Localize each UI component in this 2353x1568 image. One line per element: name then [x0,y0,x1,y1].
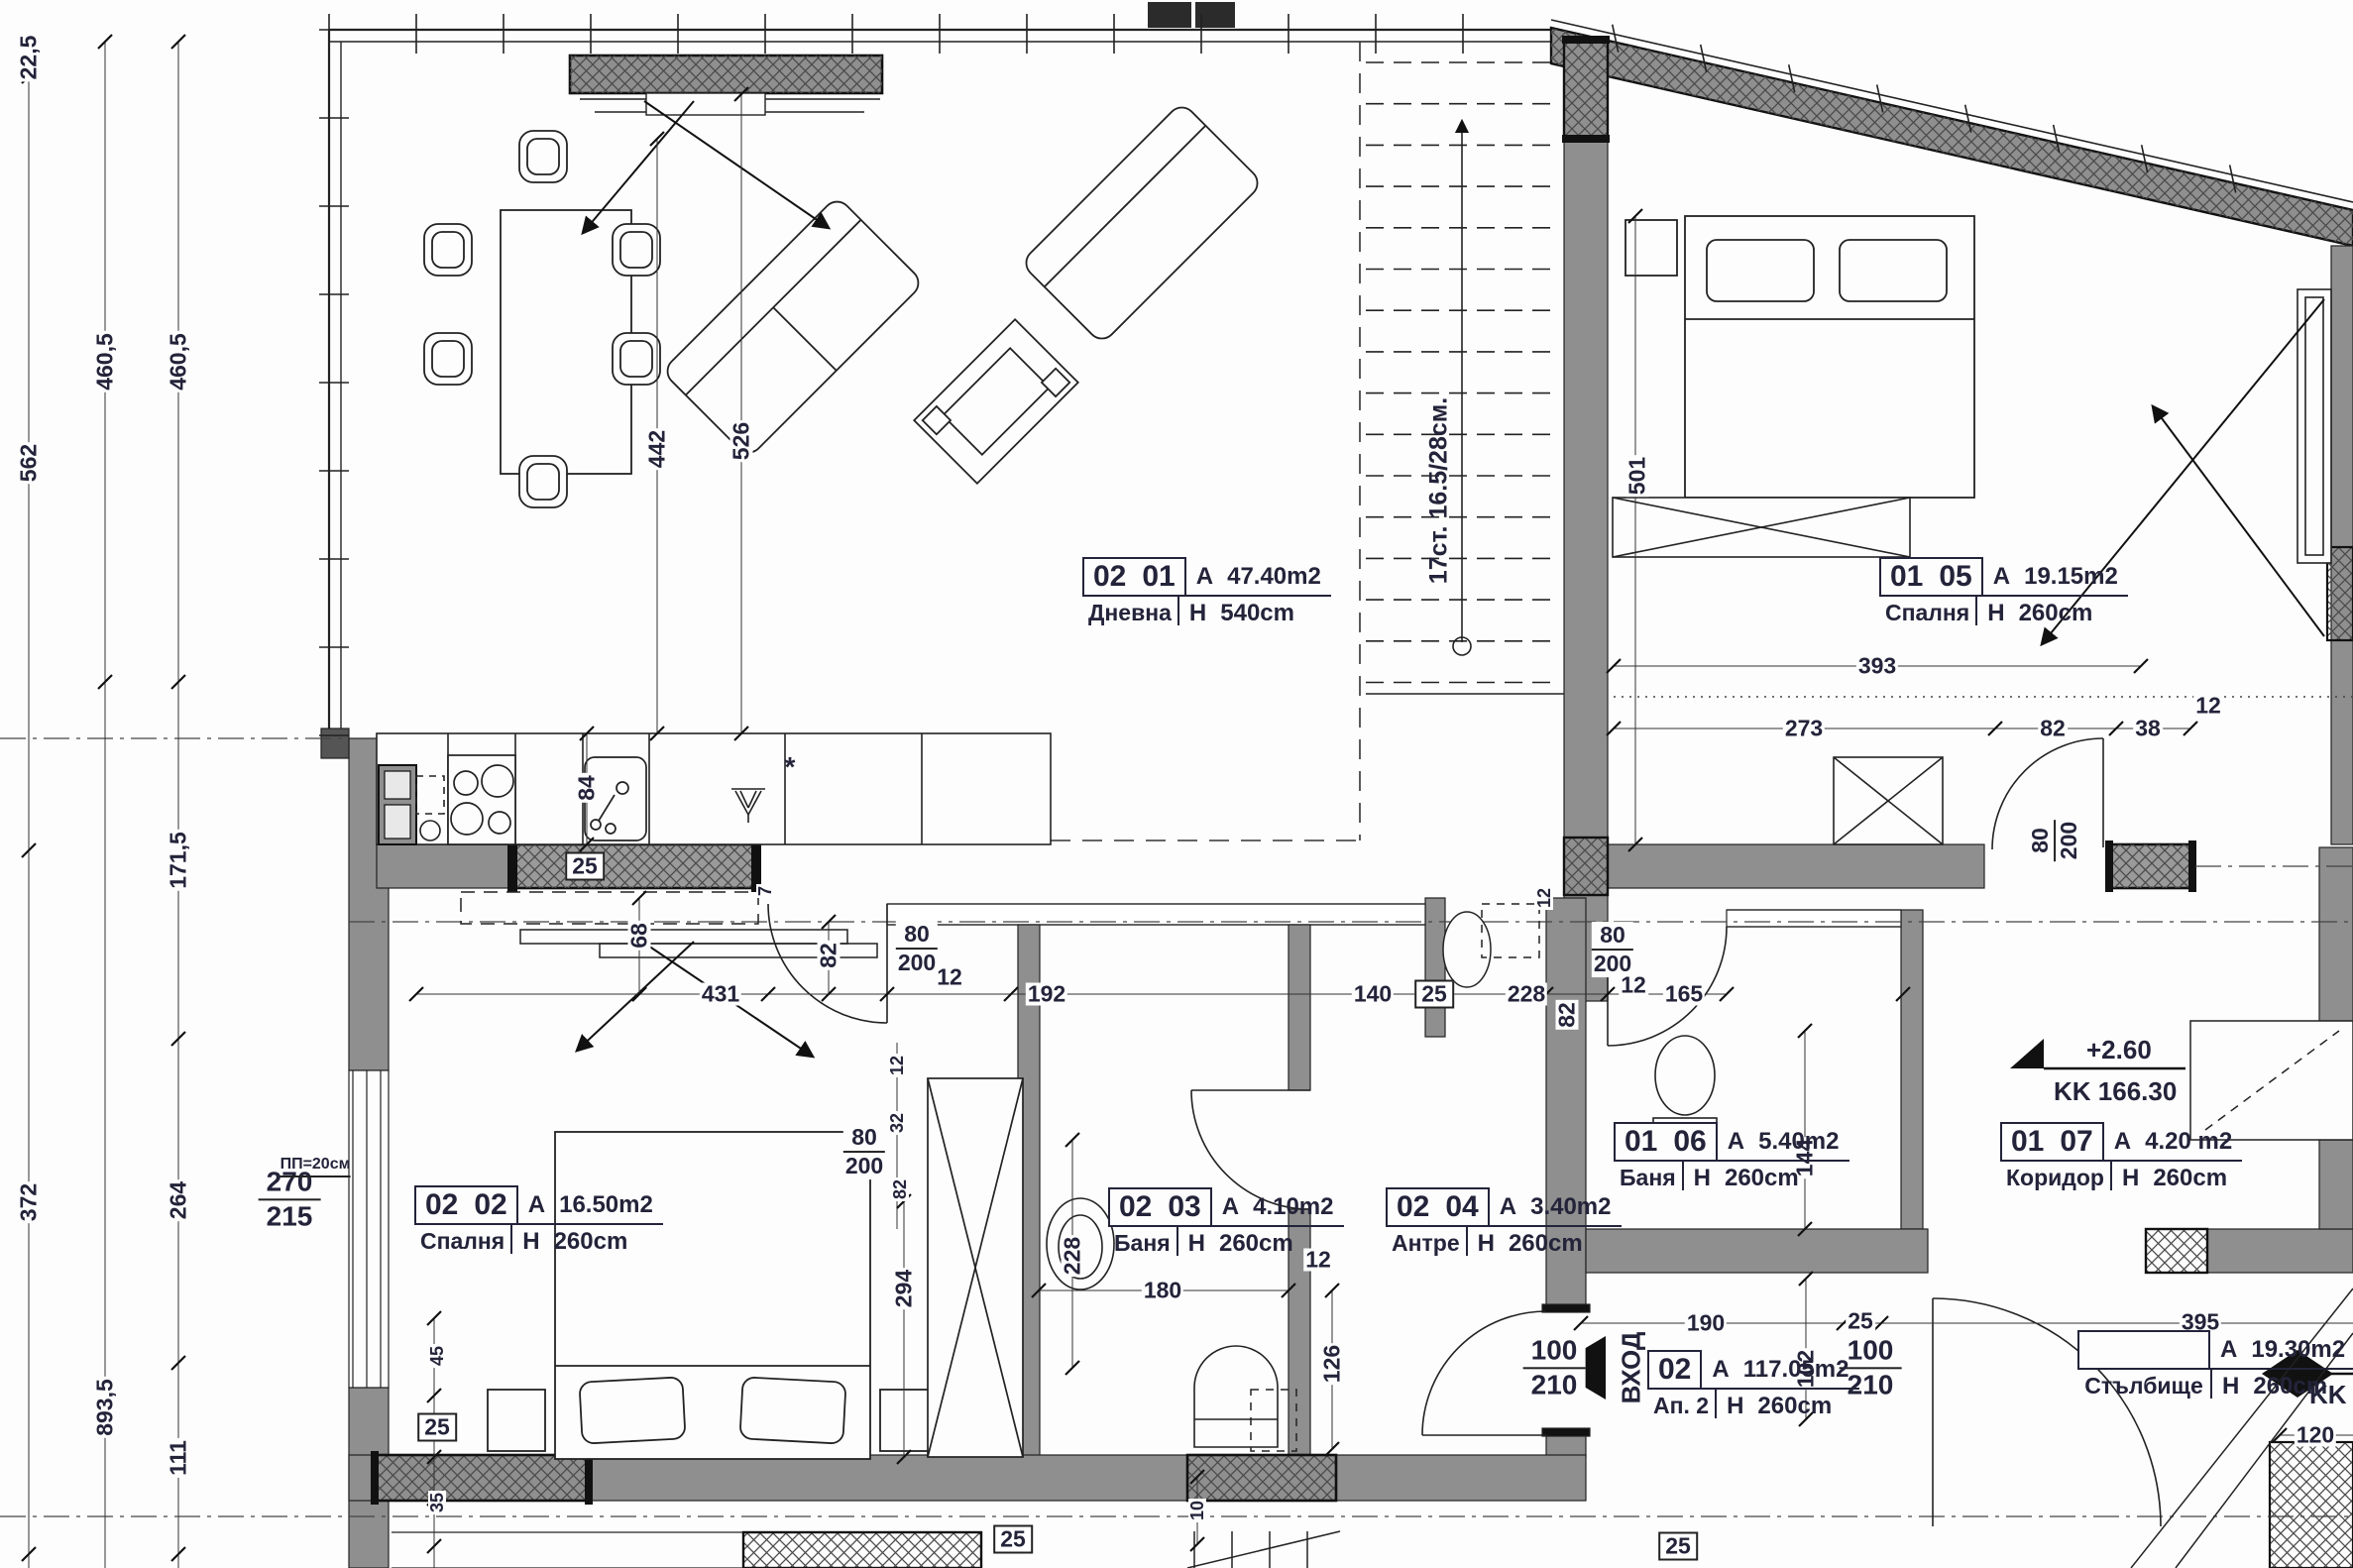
top-right-diagonal-wall [1551,28,2353,246]
dim-d_140: 140 [1352,983,1394,1006]
dim-d_228b: 228 [1062,1235,1084,1277]
room-height-cell: H260cm [1682,1162,1799,1190]
room-area-cell: A4.10m2 [1212,1195,1344,1227]
height-prefix: H [2122,1165,2139,1191]
room-number: 04 [1445,1192,1478,1222]
wardrobe-right-wall [2297,289,2331,563]
level-datum-corridor: KK 166.30 [2054,1076,2177,1107]
area-prefix: A [2220,1336,2237,1363]
dim-d_12c: 12 [2193,695,2223,718]
room-label-Антре: 0204A3.40m2АнтреH260cm [1386,1187,1622,1256]
stair-note: 17ст. 16.5/28см. [1425,397,1454,584]
room-area-cell: A47.40m2 [1186,565,1331,597]
room-area-cell: A117.05m2 [1702,1358,1858,1390]
room-number-box [2077,1330,2210,1370]
room-number: 02 [425,1190,458,1220]
nightstand [1625,220,1677,276]
height-prefix: H [1694,1165,1711,1191]
dim-value: 200 [843,1154,885,1179]
room-name: Дневна [1082,597,1177,625]
sofa-small [1021,102,1264,345]
dim-d_22_5: 22,5 [18,34,41,82]
room-number: 06 [1673,1127,1706,1157]
dim-d_111: 111 [168,1438,190,1478]
dim-d_171: 171,5 [168,830,190,891]
room-height-cell: H260cm [1975,597,2092,625]
room-label-Дневна: 0201A47.40m2ДневнаH540cm [1082,557,1331,625]
room-area: 19.30m2 [2251,1336,2345,1363]
dim-d_25a: 25 [1846,1310,1875,1333]
dim-value: 100 [1523,1334,1586,1369]
room-number-box: 0107 [2000,1122,2104,1162]
room-area: 4.20 m2 [2145,1128,2232,1155]
wardrobe-x-bedroom-01 [1834,757,1943,844]
dim-d_526: 526 [730,420,753,462]
room-label-Спалня: 0202A16.50m2СпалняH260cm [414,1185,663,1254]
dim-d_431: 431 [700,983,741,1006]
dim-d_264: 264 [168,1179,190,1221]
room-label-Баня: 0203A4.10m2БаняH260cm [1108,1187,1344,1256]
room-number: 05 [1939,562,1971,592]
dim-d_273: 273 [1783,718,1825,740]
area-prefix: A [1196,563,1213,590]
dining-table [424,131,660,507]
room-number: 01 [1890,562,1923,592]
dim-d_294: 294 [893,1268,916,1309]
nightstand [488,1390,545,1451]
dim-d_393: 393 [1856,655,1898,678]
room-name: Спалня [1879,597,1975,625]
room-height-cell: H540cm [1177,597,1294,625]
room-height: 260cm [1757,1393,1832,1419]
dim-d_45: 45 [428,1344,446,1368]
dim-d_25d: 25 [1658,1532,1698,1561]
bed-bedroom-02 [488,1132,938,1459]
room-number: 01 [1625,1127,1657,1157]
dim-d_192: 192 [1026,983,1067,1006]
dim-value: 215 [265,1201,315,1233]
room-name: Ап. 2 [1647,1390,1715,1418]
star-mark: * [785,751,796,783]
height-prefix: H [1727,1393,1743,1419]
height-prefix: H [1188,1230,1205,1257]
room-area: 5.40m2 [1758,1128,1839,1155]
room-number: 01 [1142,562,1175,592]
dim-d_25b: 25 [417,1413,457,1442]
room-name: Баня [1108,1227,1176,1256]
room-area: 19.15m2 [2024,563,2118,590]
room-area-cell: A3.40m2 [1490,1195,1622,1227]
room-area: 47.40m2 [1227,563,1321,590]
room-area-cell: A19.15m2 [1983,565,2128,597]
room-label-Коридор: 0107A4.20 m2КоридорH260cm [2000,1122,2242,1190]
dim-d_460b: 460,5 [168,331,190,392]
room-number-box: 0106 [1614,1122,1718,1162]
dim-d_68: 68 [628,921,651,951]
room-number: 07 [2060,1127,2092,1157]
height-prefix: H [1987,600,2004,626]
sofa-large [662,196,924,458]
level-datum-stairs: KK 1 [2309,1380,2353,1410]
dim-value: 200 [896,951,938,976]
dim-d_25k: 25 [565,852,605,881]
height-prefix: H [2222,1373,2239,1400]
room-number-box: 0203 [1108,1187,1212,1227]
room-number: 02 [1658,1355,1691,1385]
dim-value: 210 [1529,1370,1580,1401]
room-height: 260cm [2019,600,2093,626]
room-label-Баня: 0106A5.40m2БаняH260cm [1614,1122,1849,1190]
room-area: 4.10m2 [1253,1193,1333,1220]
area-prefix: A [1712,1356,1729,1383]
room-number: 02 [1093,562,1126,592]
area-prefix: A [1222,1193,1239,1220]
room-height-cell: H260cm [1176,1227,1293,1256]
room-height: 260cm [1509,1230,1583,1257]
dim-value: 80 [843,1124,885,1153]
floor-plan-sheet: 22,5562460,5460,5171,5372264893,51114425… [0,0,2353,1568]
dim-d_372: 372 [18,1181,41,1223]
room-number: 02 [474,1190,506,1220]
area-prefix: A [1500,1193,1516,1220]
dim-d_12d: 12 [1535,886,1553,910]
dim-d_562: 562 [18,442,41,484]
room-number-box: 0202 [414,1185,518,1225]
area-prefix: A [2114,1128,2131,1155]
toilet-bath-02 [1194,1346,1278,1447]
dim-d_126: 126 [1321,1343,1344,1385]
bed-bedroom-01 [1625,216,1974,498]
room-number-box: 0105 [1879,557,1983,597]
room-name: Коридор [2000,1162,2110,1190]
dim-d_80c: 80200 [2027,820,2082,861]
room-label-Ап. 2: 02A117.05m2Ап. 2H260cm [1647,1350,1859,1418]
dim-d_25c: 25 [993,1525,1033,1554]
coffee-table [914,319,1077,483]
room-number-box: 0201 [1082,557,1186,597]
window-bedroom-02 [349,1070,389,1388]
height-prefix: H [1478,1230,1495,1257]
room-height: 260cm [1725,1165,1799,1191]
dim-d_12a: 12 [935,966,964,989]
floor-plan-drawing [0,0,2353,1568]
room-number-box: 02 [1647,1350,1702,1390]
room-name: Баня [1614,1162,1682,1190]
room-area-cell: A4.20 m2 [2104,1130,2242,1162]
dim-d_80b: 80200 [1592,922,1633,977]
room-area-cell: A5.40m2 [1718,1130,1849,1162]
area-prefix: A [1993,563,2010,590]
room-area: 117.05m2 [1743,1356,1849,1383]
room-height: 540cm [1220,600,1294,626]
dim-d_25w: 25 [1414,980,1454,1009]
room-area-cell: A16.50m2 [518,1193,663,1225]
height-prefix: H [1189,600,1206,626]
dim-value: 80 [896,921,938,950]
wardrobe-x-bedroom-02 [928,1078,1023,1457]
room-height-cell: H260cm [1466,1227,1583,1256]
vent-shaft [1148,2,1235,28]
area-prefix: A [528,1191,545,1218]
dim-d_165: 165 [1663,983,1705,1006]
bench-bed-foot [1613,498,1910,557]
dim-d_82b: 82 [1556,1000,1579,1030]
dim-d_180: 180 [1142,1280,1183,1302]
dim-d_82a: 82 [818,941,840,970]
dim-d_893: 893,5 [94,1377,117,1438]
facade-beam [570,56,882,115]
dim-value: 80 [2027,820,2056,861]
room-number-box: 0204 [1386,1187,1490,1227]
dim-d_228a: 228 [1506,983,1547,1006]
dim-d_80d: 80200 [843,1124,885,1179]
height-prefix: H [522,1228,539,1255]
level-value-corridor: +2.60 [2086,1035,2152,1065]
dim-d_460a: 460,5 [94,331,117,392]
room-height: 260cm [2153,1165,2227,1191]
room-area: 16.50m2 [559,1191,653,1218]
dim-d_38: 38 [2133,718,2163,740]
dim-d_35: 35 [428,1491,446,1514]
dim-d_32: 32 [888,1111,906,1135]
room-height-cell: H260cm [1715,1390,1832,1418]
dim-d_82d: 82 [891,1177,909,1201]
room-number: 01 [2011,1127,2044,1157]
room-height-cell: H260cm [510,1225,627,1254]
dim-d_501: 501 [1626,455,1649,497]
room-number: 02 [1119,1192,1152,1222]
staircase [1366,62,1564,694]
dim-d_12b: 12 [1619,974,1648,997]
room-name: Стълбище [2077,1370,2210,1399]
stove [448,755,515,844]
room-name: Антре [1386,1227,1466,1256]
dim-d_80a: 80200 [896,921,938,976]
dim-d_10: 10 [1188,1499,1206,1522]
entrance-label: ВХОД [1617,1332,1647,1404]
dim-d_190: 190 [1685,1312,1727,1335]
area-prefix: A [1728,1128,1744,1155]
pp-note: ПП=20см [280,1156,351,1177]
room-label-Спалня: 0105A19.15m2СпалняH260cm [1879,557,2128,625]
dim-d_12e: 12 [888,1054,906,1077]
dim-d_100a: 100210 [1523,1334,1586,1400]
dim-value: 200 [2057,820,2082,861]
dim-d_120: 120 [2295,1424,2336,1447]
room-number: 02 [1397,1192,1429,1222]
fridge [379,765,416,844]
room-height: 260cm [1219,1230,1293,1257]
room-name: Спалня [414,1225,510,1254]
room-number: 03 [1168,1192,1200,1222]
dim-d_442: 442 [646,428,669,470]
dim-d_7: 7 [756,884,774,898]
room-area-cell: A19.30m2 [2210,1338,2353,1370]
washbasin-antre [1443,912,1491,987]
dim-value: 80 [1592,922,1633,951]
room-area: 3.40m2 [1530,1193,1611,1220]
dim-d_84: 84 [576,773,599,803]
room-height: 260cm [554,1228,628,1255]
dim-d_82c: 82 [2038,718,2068,740]
room-height-cell: H260cm [2110,1162,2227,1190]
